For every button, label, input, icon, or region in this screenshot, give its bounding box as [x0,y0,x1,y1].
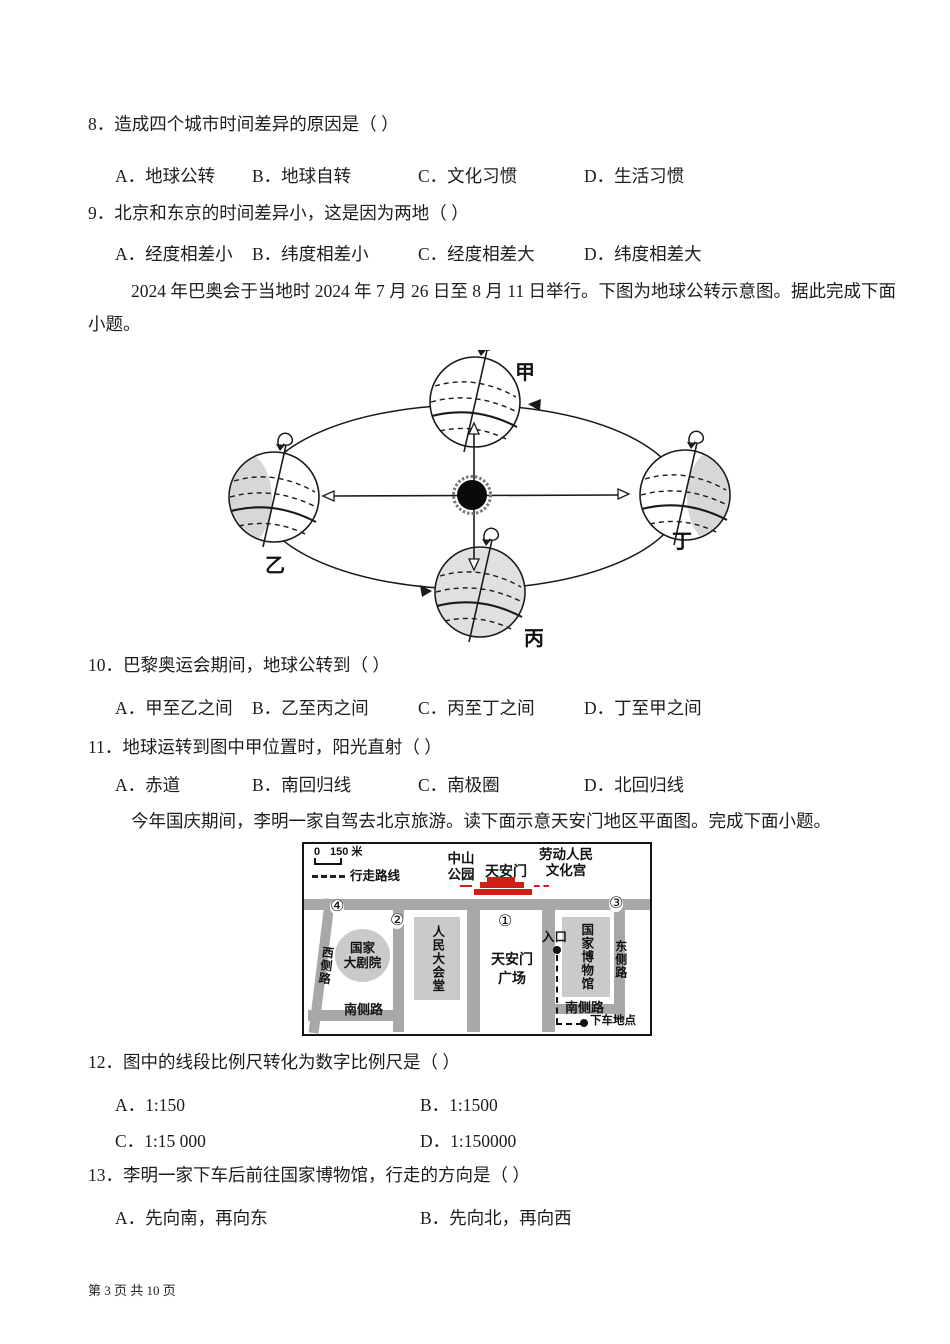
q9-option-a: A．经度相差小 [115,241,233,266]
q10-option-b: B．乙至丙之间 [252,695,369,720]
globe-jia [430,350,520,452]
scale-zero: 0 [314,846,320,859]
passage-beijing: 今年国庆期间，李明一家自驾去北京旅游。读下面示意天安门地区平面图。完成下面小题。 [131,810,831,833]
entrance-dot [553,946,561,954]
dropoff-dot [580,1019,588,1027]
q11-option-b: B．南回归线 [252,772,351,797]
question-12-options-row1: A．1:150 B．1:1500 [88,1092,918,1115]
legend-route-label: 行走路线 [350,869,400,883]
q10-option-a: A．甲至乙之间 [115,695,233,720]
map-number-2: ② [390,913,404,929]
q12-option-a: A．1:150 [115,1092,185,1117]
q8-option-b: B．地球自转 [252,163,351,188]
q10-option-d: D．丁至甲之间 [584,695,702,720]
scale-bar [314,858,342,865]
gate-middle [480,882,524,888]
gate-dash-right [534,885,549,887]
question-9-options: A．经度相差小 B．纬度相差小 C．经度相差大 D．纬度相差大 [88,241,918,264]
q11-option-c: C．南极圈 [418,772,500,797]
earth-revolution-diagram: 甲 乙 丙 丁 [180,350,740,650]
labor-palace-label: 劳动人民文化宫 [537,847,595,878]
gate-base [474,889,532,895]
national-theater: 国家大剧院 [335,929,390,982]
question-11: 11．地球运转到图中甲位置时，阳光直射（ ） [88,736,442,759]
question-10-options: A．甲至乙之间 B．乙至丙之间 C．丙至丁之间 D．丁至甲之间 [88,695,918,718]
zhongshan-park-label: 中山公园 [444,851,478,882]
entrance-label: 入口 [542,930,567,944]
q9-option-d: D．纬度相差大 [584,241,702,266]
passage-olympics-line1: 2024 年巴奥会于当地时 2024 年 7 月 26 日至 8 月 11 日举… [131,280,896,303]
q11-option-a: A．赤道 [115,772,180,797]
question-12: 12．图中的线段比例尺转化为数字比例尺是（ ） [88,1051,460,1074]
legend-route-line [312,875,345,878]
dropoff-label: 下车地点 [590,1015,636,1028]
q11-option-d: D．北回归线 [584,772,684,797]
south-road-left-label: 南侧路 [344,1003,383,1018]
globe-bing [435,528,525,642]
q9-option-b: B．纬度相差小 [252,241,369,266]
question-11-options: A．赤道 B．南回归线 C．南极圈 D．北回归线 [88,772,918,795]
map-number-1: ① [498,914,512,930]
q8-option-a: A．地球公转 [115,163,215,188]
scale-distance: 150 米 [330,846,362,859]
east-road-label: 东侧路 [613,940,627,979]
tiananmen-area-map: 0 150 米 行走路线 中山公园 天安门 劳动人民文化宫 ④ ② ① ③ 西侧… [302,842,652,1036]
national-museum: 国家博物馆 [562,917,610,997]
ray-arrow-left [323,491,334,501]
ray-arrow-right [618,489,629,499]
q13-option-a: A．先向南，再向东 [115,1205,268,1230]
gate-dash-left [460,885,472,887]
globe-yi [212,433,319,547]
question-10: 10．巴黎奥运会期间，地球公转到（ ） [88,654,390,677]
q12-option-b: B．1:1500 [420,1092,498,1117]
label-yi: 乙 [265,555,285,577]
q8-option-c: C．文化习惯 [418,163,517,188]
q10-option-c: C．丙至丁之间 [418,695,535,720]
question-9: 9．北京和东京的时间差异小，这是因为两地（ ） [88,202,469,225]
south-road-right-label: 南侧路 [565,1001,604,1016]
great-hall: 人民大会堂 [414,917,460,1000]
q13-option-b: B．先向北，再向西 [420,1205,572,1230]
map-number-3: ③ [609,896,623,912]
road-v-midleft [467,899,480,1032]
globe-ding [640,431,740,545]
page-footer: 第 3 页 共 10 页 [88,1280,176,1299]
map-number-4: ④ [330,899,344,915]
exam-page: 8．造成四个城市时间差异的原因是（ ） A．地球公转 B．地球自转 C．文化习惯… [0,0,950,1344]
question-13: 13．李明一家下车后前往国家博物馆，行走的方向是（ ） [88,1164,530,1187]
q12-option-c: C．1:15 000 [115,1128,206,1153]
question-8: 8．造成四个城市时间差异的原因是（ ） [88,113,399,136]
q12-option-d: D．1:150000 [420,1128,516,1153]
label-ding: 丁 [672,531,692,553]
sun-icon [454,477,491,514]
walk-route-horizontal [556,1023,582,1025]
question-13-options: A．先向南，再向东 B．先向北，再向西 [88,1205,918,1228]
question-12-options-row2: C．1:15 000 D．1:150000 [88,1128,918,1151]
tiananmen-gate-icon [474,877,532,895]
walk-route-vertical [556,955,558,1024]
q8-option-d: D．生活习惯 [584,163,684,188]
label-jia: 甲 [515,362,535,384]
q9-option-c: C．经度相差大 [418,241,535,266]
label-bing: 丙 [524,628,544,650]
passage-olympics-line2: 小题。 [88,313,141,336]
tiananmen-square-label: 天安门广场 [489,950,535,988]
question-8-options: A．地球公转 B．地球自转 C．文化习惯 D．生活习惯 [88,163,918,186]
